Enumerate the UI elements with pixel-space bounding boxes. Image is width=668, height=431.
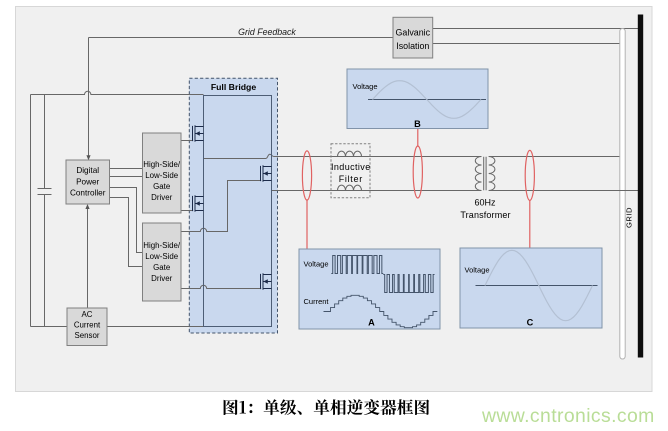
svg-text:C: C [527,318,534,328]
svg-text:Controller: Controller [70,189,106,198]
svg-text:High-Side/: High-Side/ [143,241,181,250]
svg-text:Low-Side: Low-Side [145,171,179,180]
svg-text:AC: AC [82,310,93,319]
svg-text:Transformer: Transformer [460,210,510,220]
svg-text:High-Side/: High-Side/ [143,160,181,169]
svg-text:Galvanic: Galvanic [396,28,431,38]
svg-text:Voltage: Voltage [465,266,490,275]
svg-text:Grid Feedback: Grid Feedback [238,27,296,37]
svg-text:www.cntronics.com: www.cntronics.com [481,405,655,427]
svg-text:Voltage: Voltage [304,260,329,269]
svg-text:Current: Current [74,321,101,330]
svg-text:Full Bridge: Full Bridge [211,82,257,92]
svg-text:Digital: Digital [76,166,99,175]
svg-text:Voltage: Voltage [353,82,378,91]
svg-text:Gate: Gate [153,182,171,191]
svg-text:60Hz: 60Hz [474,198,496,208]
svg-text:Power: Power [76,178,99,187]
svg-text:Inductive: Inductive [331,162,371,172]
svg-text:A: A [368,318,375,328]
svg-text:Driver: Driver [151,274,172,283]
svg-text:Filter: Filter [339,174,363,184]
svg-text:B: B [414,119,421,129]
svg-text:Low-Side: Low-Side [145,252,179,261]
svg-text:Isolation: Isolation [396,41,429,51]
svg-text:GRID: GRID [624,207,633,228]
svg-text:Current: Current [304,297,330,306]
svg-text:Driver: Driver [151,193,172,202]
svg-text:Gate: Gate [153,263,171,272]
svg-text:Sensor: Sensor [74,331,99,340]
